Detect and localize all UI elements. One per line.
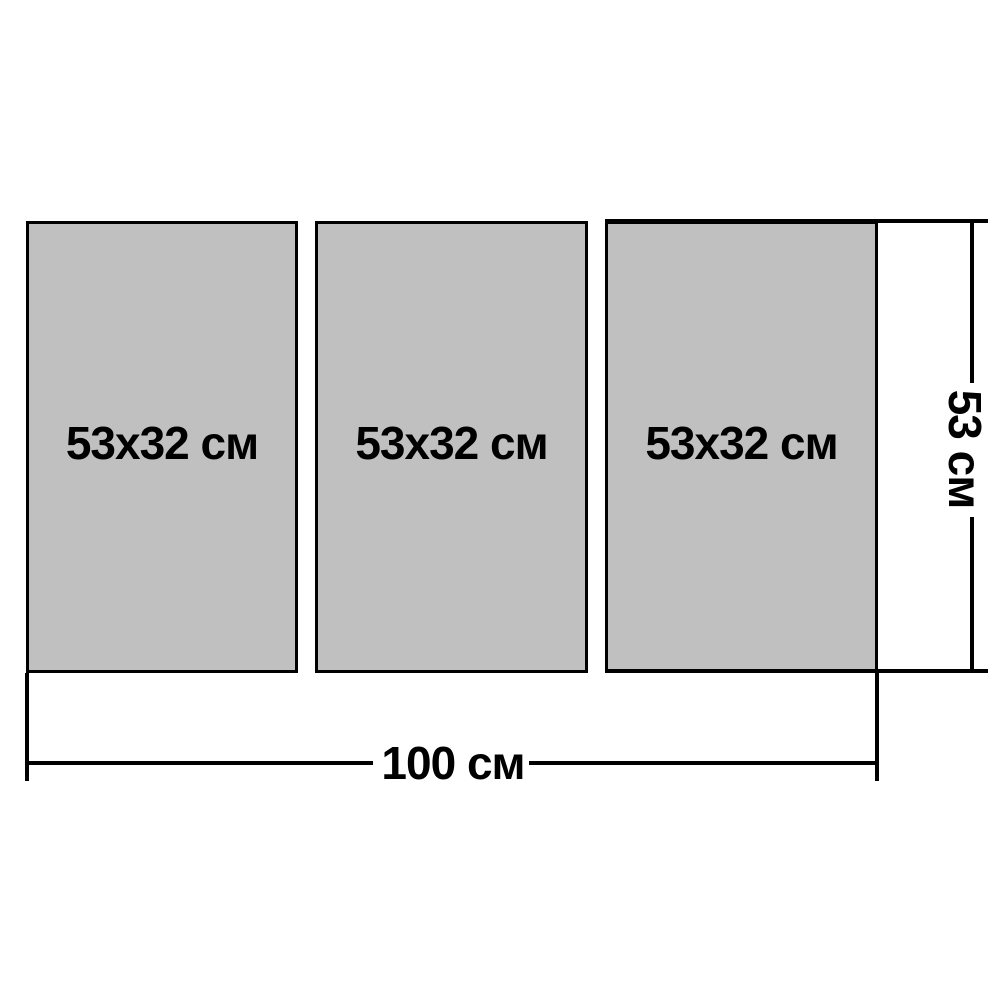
height-dimension-top-witness-line [605,219,988,223]
panel-left: 53x32 см [26,221,298,673]
width-dimension-line-left [27,761,373,765]
height-dimension-label: 53 см [940,349,990,549]
width-dimension-label: 100 см [371,737,535,789]
height-dimension-bottom-witness-line [605,669,988,673]
panel-right: 53x32 см [605,221,878,673]
panel-right-size-label: 53x32 см [645,416,837,470]
dimension-diagram: 53x32 см 53x32 см 53x32 см 53 см 100 см [0,0,1000,1000]
width-dimension-line-right [529,761,878,765]
panel-center: 53x32 см [315,221,588,673]
panel-left-size-label: 53x32 см [66,416,258,470]
panel-center-size-label: 53x32 см [355,416,547,470]
